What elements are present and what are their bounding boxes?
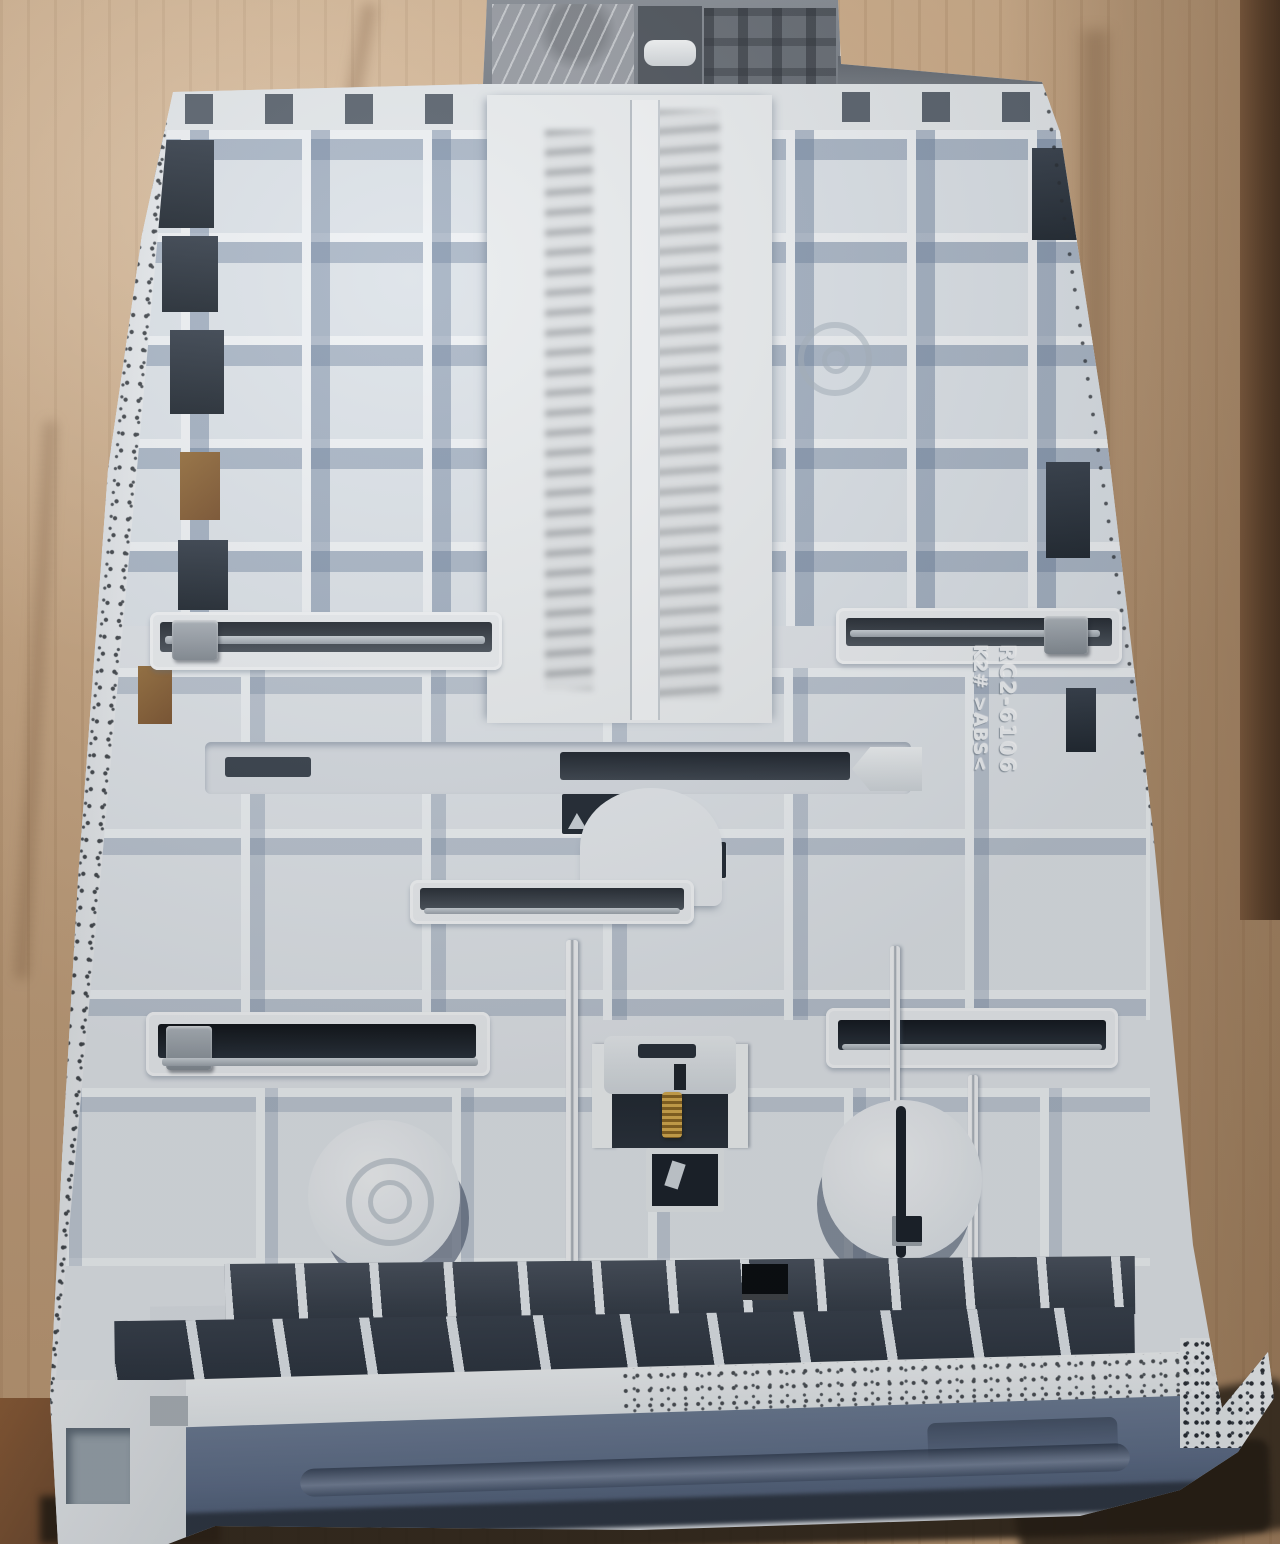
guide-rail-slot-lower-right: [826, 1008, 1118, 1068]
cardboard-showthrough-hole: [138, 666, 172, 724]
molded-part-number: RC2-6106: [992, 645, 1022, 815]
scratched-metal-plate: [492, 4, 634, 94]
guide-rail: [424, 908, 680, 914]
open-slot: [170, 330, 224, 414]
latch-slot: [638, 1044, 696, 1058]
scuff-marks: [545, 130, 593, 690]
photo-printer-tray: RC2-6106 K2# >ABS<: [0, 0, 1280, 1544]
guide-rail-slot-lower-left: [146, 1012, 490, 1076]
guide-rail-slot-upper-left: [150, 612, 502, 670]
latch-pin: [674, 1064, 686, 1090]
gear-panel: [704, 8, 836, 92]
disc-hub: [368, 1180, 412, 1224]
rail-slot-opening: [420, 888, 684, 910]
channel-slot: [225, 757, 311, 777]
cardboard-dark-edge: [1240, 0, 1280, 920]
cardboard-showthrough-hole: [180, 452, 220, 520]
open-slot: [162, 236, 218, 312]
guide-rail: [162, 1058, 478, 1066]
dial-window: [892, 1216, 922, 1246]
linkage-rod: [890, 946, 900, 1104]
open-slot: [178, 540, 228, 610]
bracket-notch: [66, 1428, 130, 1504]
latch-window: [646, 1148, 724, 1212]
vent-slots-right: [842, 92, 1034, 122]
paper-pickup-roller: [644, 40, 696, 66]
fin-window: [742, 1264, 788, 1300]
molded-material-code: K2# >ABS<: [965, 645, 991, 815]
embossed-circle-center: [822, 346, 850, 374]
open-slot: [1066, 688, 1096, 752]
rail-clip: [172, 620, 218, 660]
open-slot: [1046, 462, 1090, 558]
bracket-step: [150, 1396, 188, 1426]
latch-spring: [662, 1092, 682, 1138]
vent-slots-left: [185, 94, 481, 124]
channel-slot: [560, 752, 850, 780]
guide-rail: [842, 1044, 1102, 1050]
molded-text-block: RC2-6106 K2# >ABS<: [948, 645, 1022, 815]
rail-clip: [1044, 616, 1088, 654]
plate-groove: [630, 100, 660, 720]
center-rail-slot: [410, 880, 694, 924]
